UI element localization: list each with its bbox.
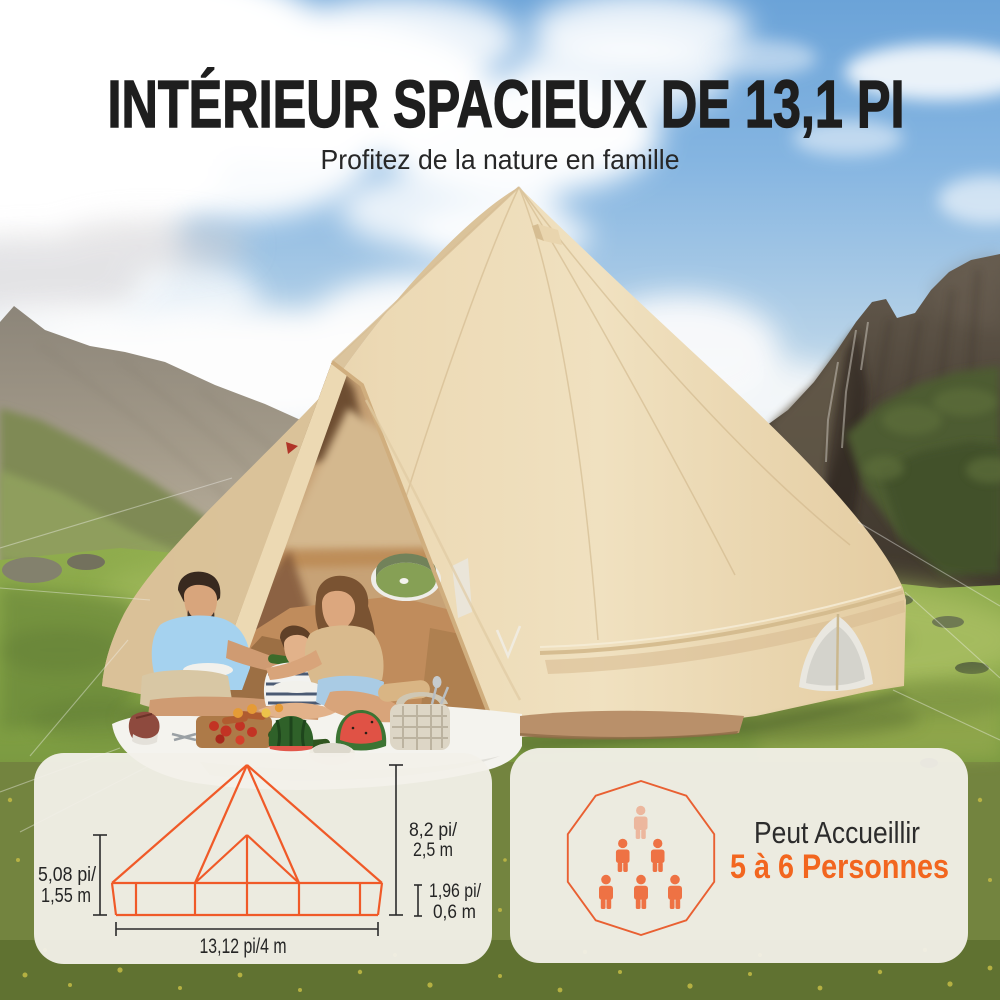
svg-text:1,96 pi/: 1,96 pi/ (429, 881, 482, 902)
svg-text:0,6 m: 0,6 m (433, 902, 476, 923)
svg-text:1,55 m: 1,55 m (41, 885, 91, 907)
svg-text:2,5 m: 2,5 m (413, 840, 453, 861)
svg-text:5 à 6 Personnes: 5 à 6 Personnes (730, 848, 949, 886)
svg-text:13,12 pi/4 m: 13,12 pi/4 m (200, 935, 287, 958)
svg-text:Peut Accueillir: Peut Accueillir (754, 815, 920, 850)
svg-text:8,2 pi/: 8,2 pi/ (409, 820, 458, 841)
svg-text:Profitez de la nature en famil: Profitez de la nature en famille (321, 144, 680, 175)
svg-text:5,08 pi/: 5,08 pi/ (38, 864, 96, 886)
svg-text:INTÉRIEUR SPACIEUX DE 13,1 PI: INTÉRIEUR SPACIEUX DE 13,1 PI (108, 67, 905, 142)
